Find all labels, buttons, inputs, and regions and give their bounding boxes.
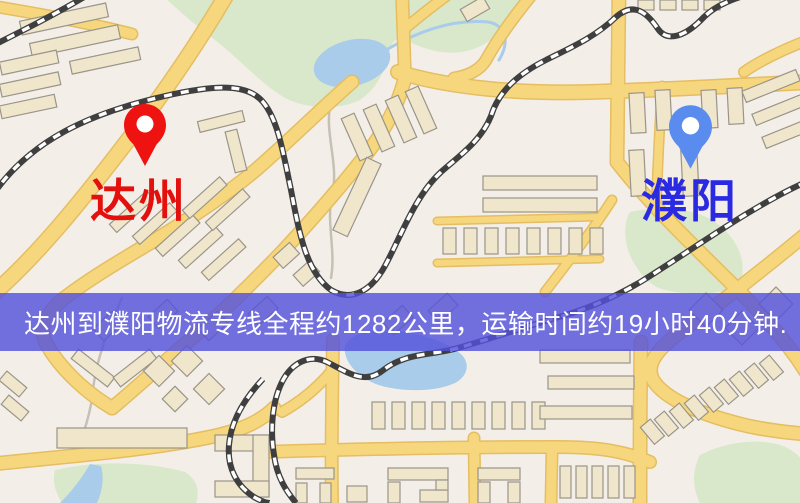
destination-pin-icon[interactable] (668, 104, 713, 170)
map-canvas[interactable] (0, 0, 800, 503)
route-info-banner: 达州到濮阳物流专线全程约1282公里，运输时间约19小时40分钟. (0, 293, 800, 351)
origin-label: 达州 (90, 178, 188, 224)
logistics-route-map: 达州到濮阳物流专线全程约1282公里，运输时间约19小时40分钟. 达州 濮阳 (0, 0, 800, 503)
origin-pin-icon[interactable] (123, 103, 167, 167)
route-info-text: 达州到濮阳物流专线全程约1282公里，运输时间约19小时40分钟. (24, 304, 787, 341)
destination-label: 濮阳 (641, 178, 739, 224)
